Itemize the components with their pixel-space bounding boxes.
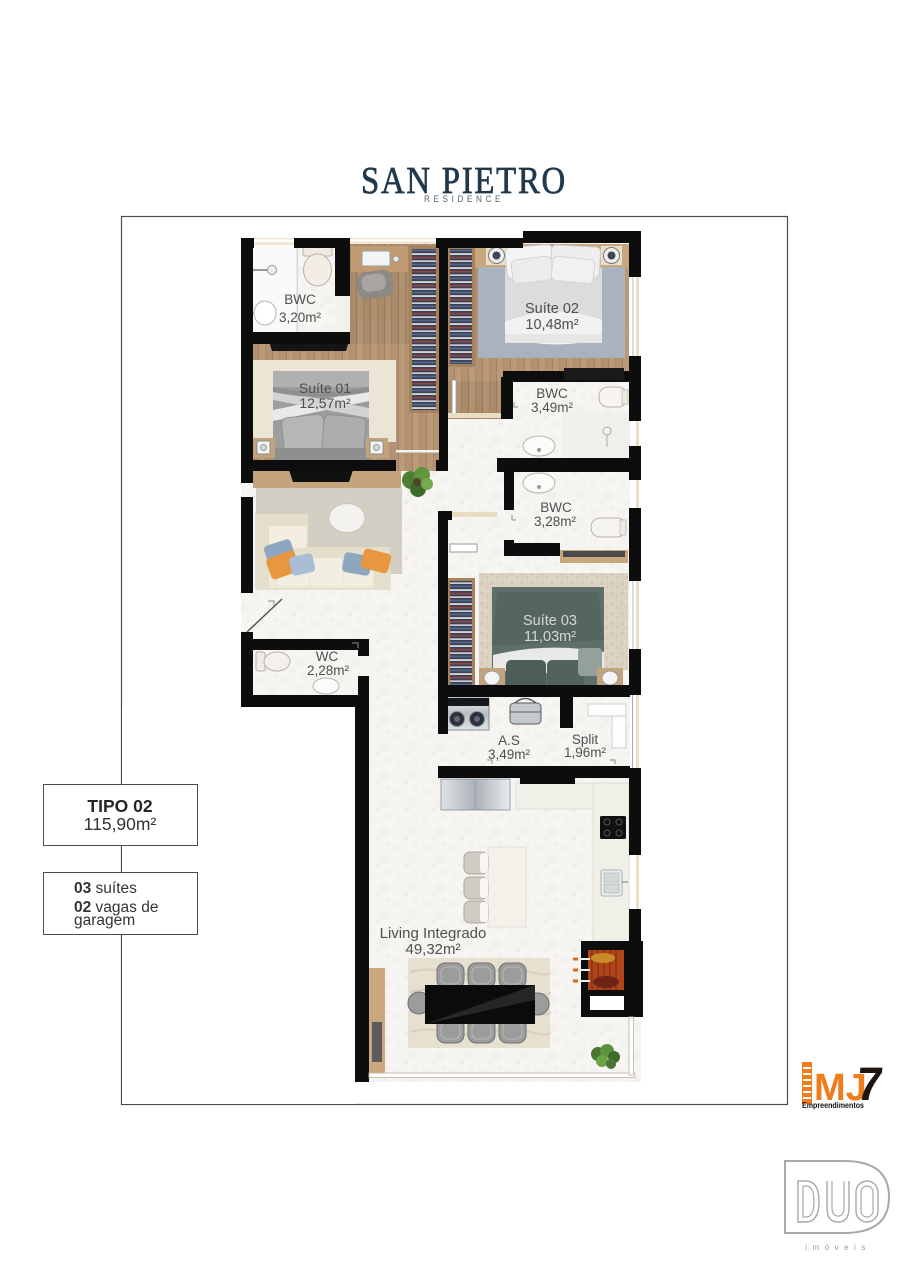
svg-text:1,96m²: 1,96m² xyxy=(564,745,607,760)
svg-text:2,28m²: 2,28m² xyxy=(307,663,350,678)
svg-text:3,49m²: 3,49m² xyxy=(488,747,531,762)
svg-text:imóveis: imóveis xyxy=(805,1243,871,1252)
svg-text:3,28m²: 3,28m² xyxy=(534,514,577,529)
svg-text:Suíte 01: Suíte 01 xyxy=(299,380,351,396)
svg-text:BWC: BWC xyxy=(536,386,568,401)
svg-text:11,03m²: 11,03m² xyxy=(524,629,576,645)
svg-text:49,32m²: 49,32m² xyxy=(405,941,460,958)
svg-text:Suíte 03: Suíte 03 xyxy=(523,613,577,629)
svg-text:WC: WC xyxy=(316,649,339,664)
svg-text:RESIDENCE: RESIDENCE xyxy=(424,194,504,204)
svg-text:A.S: A.S xyxy=(498,733,520,748)
svg-text:Empreendimentos: Empreendimentos xyxy=(802,1101,864,1110)
svg-text:115,90m²: 115,90m² xyxy=(84,814,157,834)
svg-text:10,48m²: 10,48m² xyxy=(525,317,578,333)
svg-text:Living Integrado: Living Integrado xyxy=(380,925,487,942)
svg-text:3,20m²: 3,20m² xyxy=(279,310,322,325)
svg-text:Suíte 02: Suíte 02 xyxy=(525,301,579,317)
svg-text:garagem: garagem xyxy=(74,912,135,929)
svg-text:3,49m²: 3,49m² xyxy=(531,400,574,415)
svg-text:BWC: BWC xyxy=(540,500,572,515)
svg-text:TIPO 02: TIPO 02 xyxy=(87,796,152,816)
svg-text:03 suítes: 03 suítes xyxy=(74,880,137,897)
svg-text:BWC: BWC xyxy=(284,292,316,307)
svg-text:12,57m²: 12,57m² xyxy=(299,395,351,411)
